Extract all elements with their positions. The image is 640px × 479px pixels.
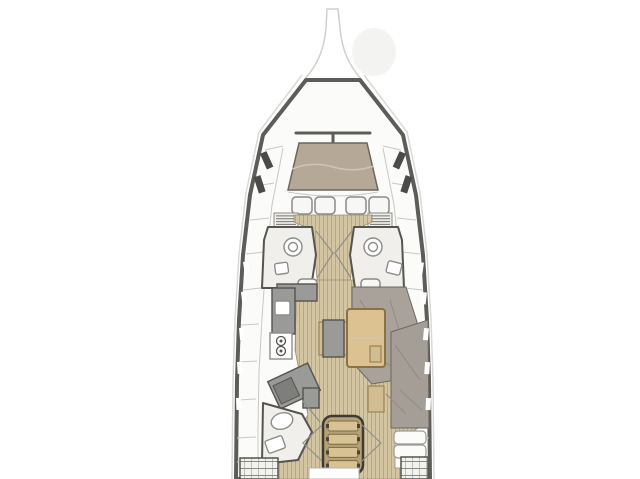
stove-burner-dot <box>280 350 283 353</box>
sink-port <box>274 262 288 275</box>
stair-tread <box>328 421 358 431</box>
tread-nub <box>326 450 329 454</box>
side-locker <box>370 346 381 362</box>
tread-nub <box>357 450 360 454</box>
aft-pillows <box>394 431 426 458</box>
forward-hatch <box>346 197 366 214</box>
galley-sink <box>275 301 290 315</box>
bowsprit <box>305 9 361 79</box>
stair-tread <box>328 434 358 444</box>
portlight-port <box>237 362 243 374</box>
tread-nub <box>357 424 360 428</box>
aft-step <box>368 386 384 412</box>
stair-tread <box>328 447 358 457</box>
tread-nub <box>326 424 329 428</box>
portlight-starboard <box>423 328 429 340</box>
forward-hatch <box>292 197 312 214</box>
portlight-port <box>236 398 241 410</box>
locker-grate-starboard <box>401 457 428 479</box>
companionway-opening <box>309 468 359 479</box>
sink-starboard <box>386 260 402 275</box>
portlight-port <box>239 328 245 340</box>
tread-nub <box>326 464 329 468</box>
portlight-starboard <box>426 398 431 410</box>
aft-pillow <box>394 445 426 458</box>
stove-burner-dot <box>280 340 283 343</box>
bow-shadow <box>352 28 396 76</box>
bench-seat <box>323 320 344 357</box>
tread-nub <box>326 437 329 441</box>
forward-hatch <box>315 197 335 214</box>
forward-hatch <box>369 197 389 214</box>
aft-pillow <box>394 431 426 444</box>
portlight-starboard <box>424 362 430 374</box>
tread-nub <box>357 437 360 441</box>
boat-floor-plan <box>0 0 640 479</box>
tread-nub <box>357 464 360 468</box>
locker-grate-port <box>240 458 278 479</box>
